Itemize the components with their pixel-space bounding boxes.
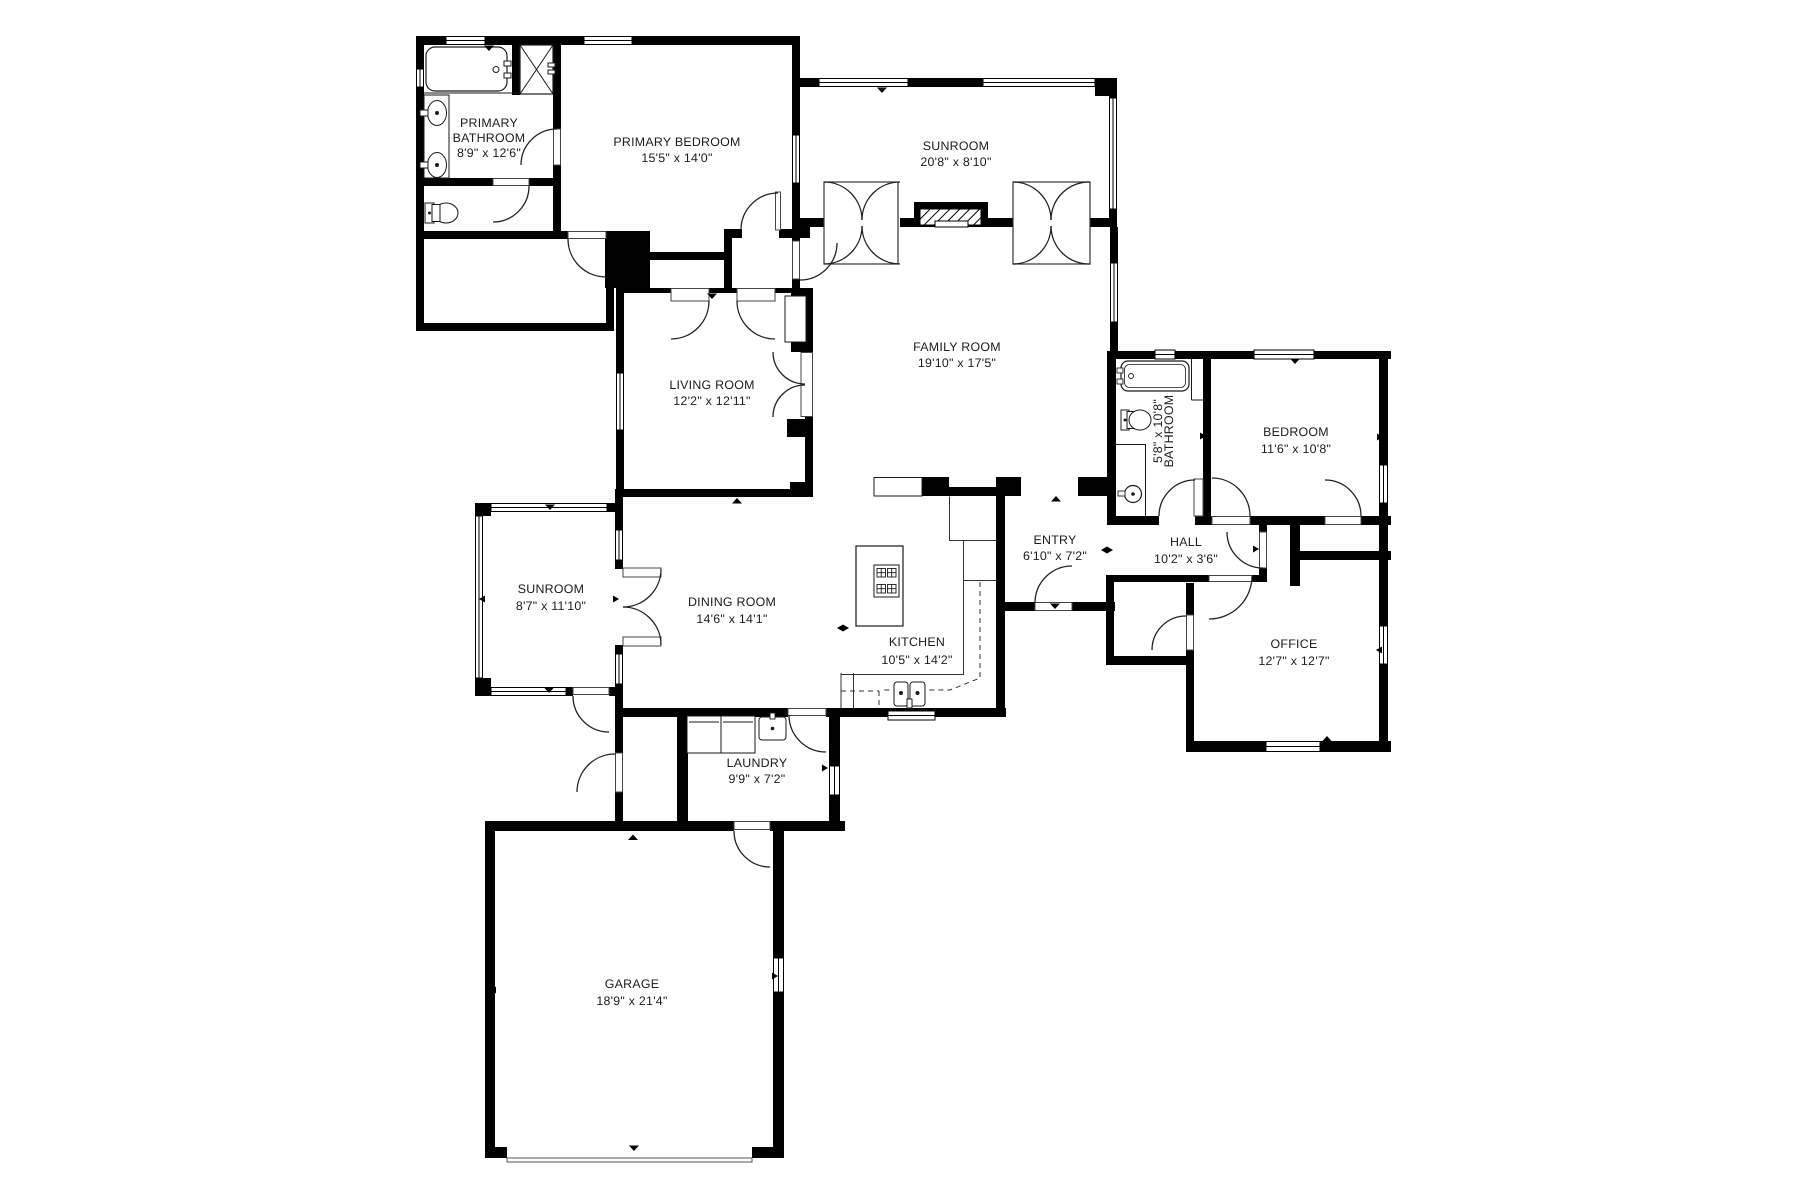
svg-text:PRIMARY BEDROOM: PRIMARY BEDROOM [613, 135, 740, 149]
svg-text:SUNROOM: SUNROOM [518, 582, 584, 596]
svg-text:KITCHEN: KITCHEN [889, 635, 945, 649]
svg-text:10'2" x 3'6": 10'2" x 3'6" [1154, 552, 1218, 566]
svg-text:8'9" x 12'6": 8'9" x 12'6" [457, 146, 521, 160]
svg-text:HALL: HALL [1170, 535, 1202, 549]
svg-text:PRIMARY: PRIMARY [460, 116, 518, 130]
svg-text:10'5" x 14'2": 10'5" x 14'2" [881, 653, 952, 667]
svg-text:20'8" x 8'10": 20'8" x 8'10" [920, 155, 991, 169]
svg-text:ENTRY: ENTRY [1033, 533, 1076, 547]
svg-text:15'5" x 14'0": 15'5" x 14'0" [641, 151, 712, 165]
svg-text:BEDROOM: BEDROOM [1263, 425, 1329, 439]
svg-text:FAMILY ROOM: FAMILY ROOM [913, 340, 1001, 354]
svg-text:DINING ROOM: DINING ROOM [688, 595, 776, 609]
svg-text:19'10" x 17'5": 19'10" x 17'5" [918, 356, 996, 370]
svg-text:5'8" x 10'8": 5'8" x 10'8" [1151, 399, 1165, 463]
svg-text:14'6" x 14'1": 14'6" x 14'1" [696, 612, 767, 626]
svg-text:GARAGE: GARAGE [605, 977, 660, 991]
svg-text:LAUNDRY: LAUNDRY [727, 756, 788, 770]
svg-text:9'9" x 7'2": 9'9" x 7'2" [729, 772, 786, 786]
svg-text:11'6" x 10'8": 11'6" x 10'8" [1261, 442, 1331, 456]
svg-text:12'2" x 12'11": 12'2" x 12'11" [673, 394, 750, 408]
svg-text:8'7" x 11'10": 8'7" x 11'10" [516, 599, 586, 613]
svg-text:BATHROOM: BATHROOM [453, 131, 526, 145]
svg-text:6'10" x 7'2": 6'10" x 7'2" [1023, 549, 1087, 563]
svg-text:LIVING ROOM: LIVING ROOM [669, 378, 754, 392]
svg-text:18'9" x 21'4": 18'9" x 21'4" [596, 994, 667, 1008]
svg-text:OFFICE: OFFICE [1271, 637, 1318, 651]
svg-text:12'7" x 12'7": 12'7" x 12'7" [1258, 654, 1329, 668]
svg-text:SUNROOM: SUNROOM [923, 139, 989, 153]
